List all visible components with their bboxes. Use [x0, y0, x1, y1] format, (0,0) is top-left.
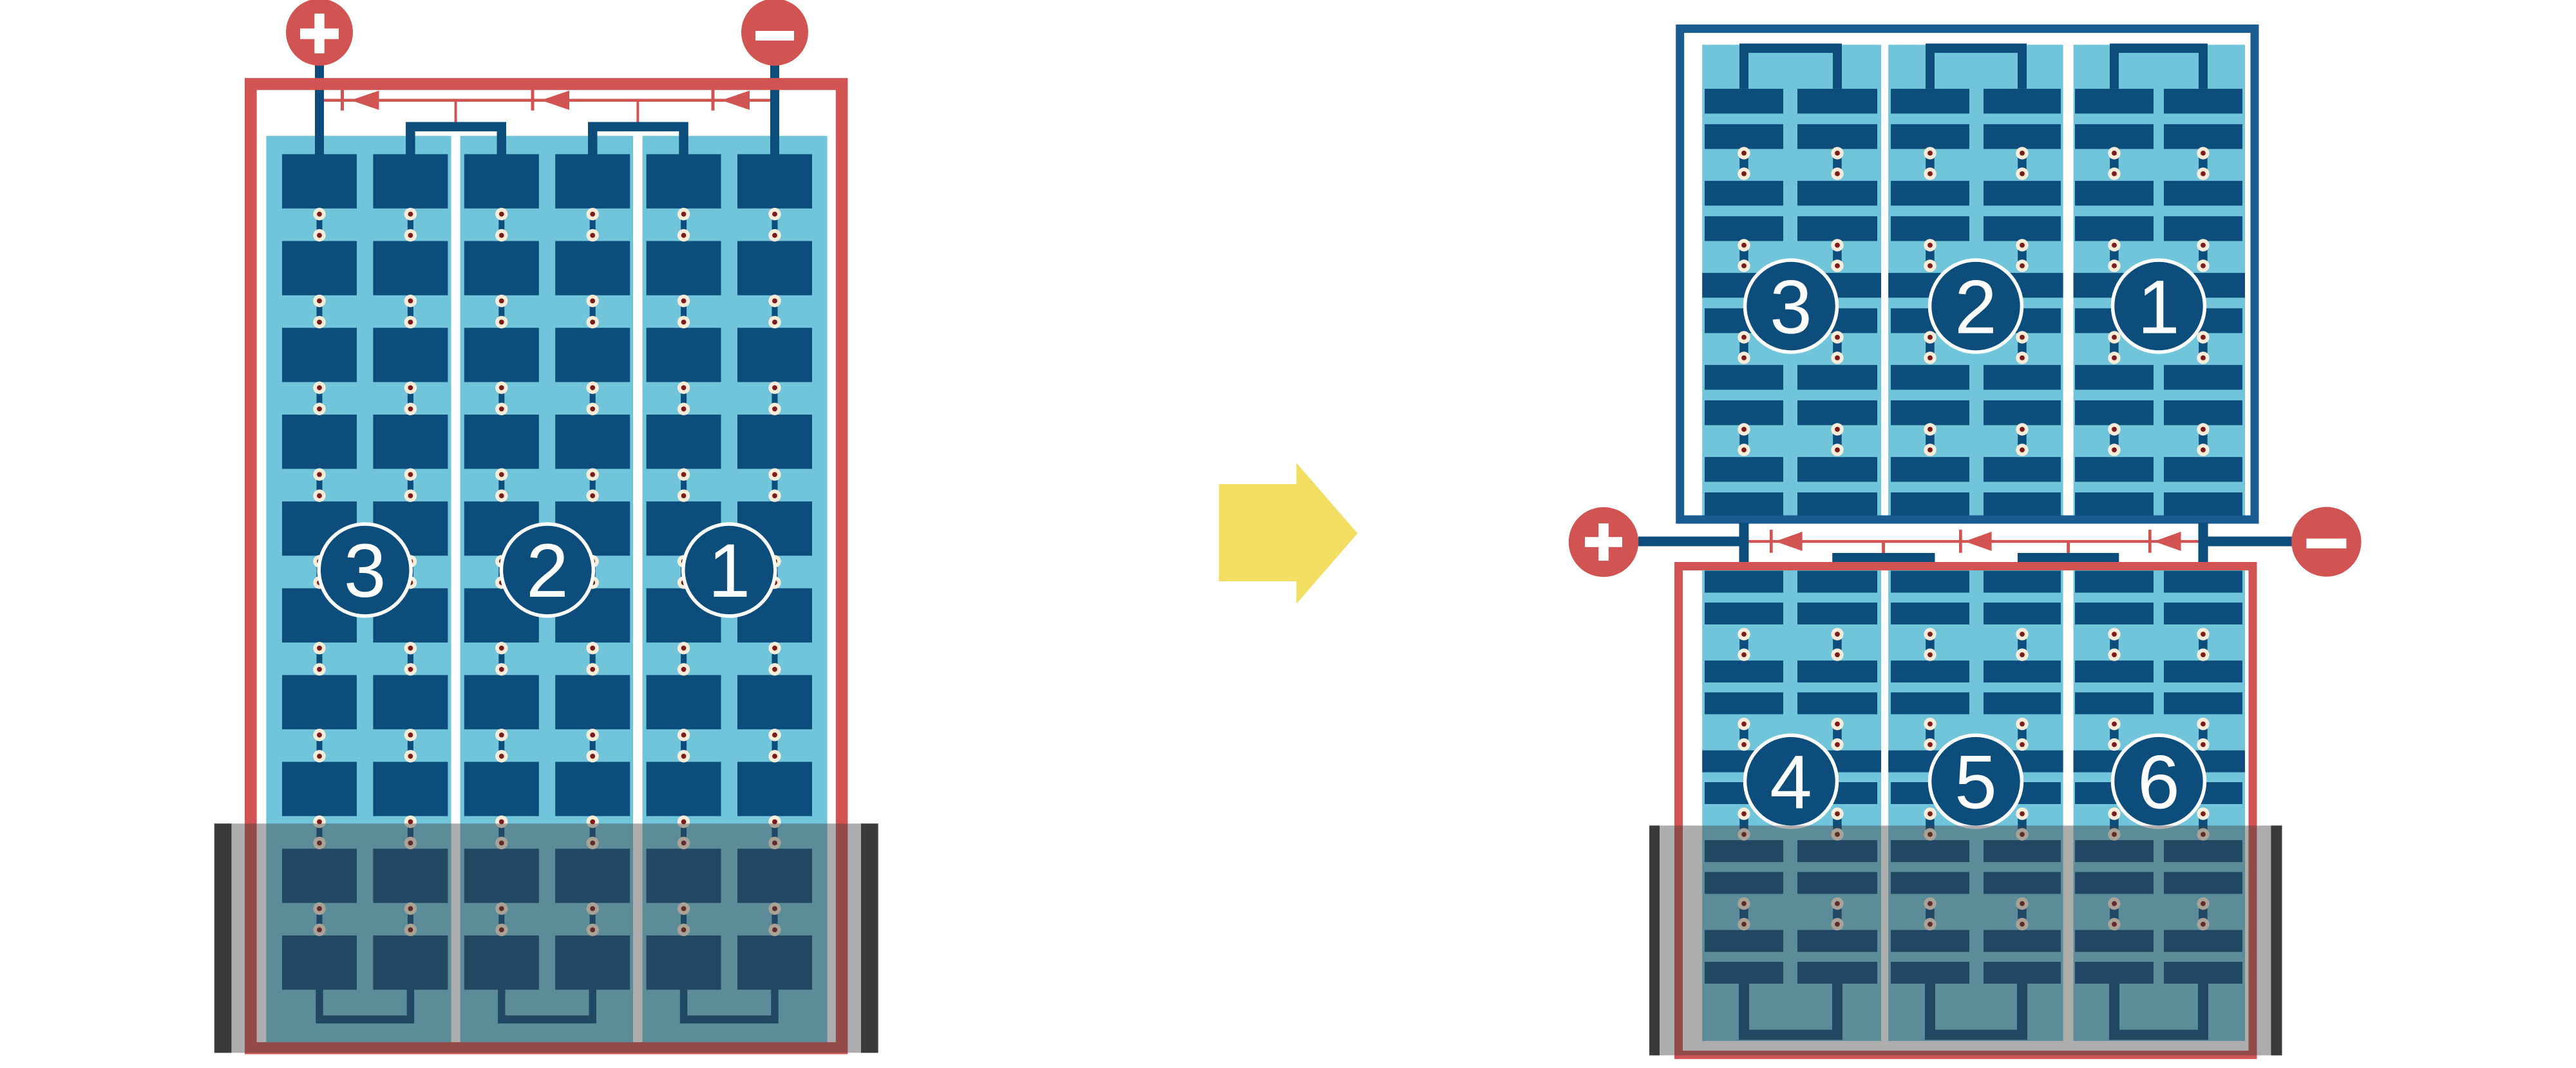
svg-text:3: 3	[1770, 265, 1812, 350]
svg-text:3: 3	[344, 529, 386, 614]
svg-text:1: 1	[708, 529, 750, 614]
svg-text:1: 1	[2137, 265, 2180, 350]
svg-text:4: 4	[1770, 740, 1812, 825]
svg-text:2: 2	[526, 529, 569, 614]
svg-text:6: 6	[2137, 740, 2180, 825]
svg-text:5: 5	[1955, 740, 1997, 825]
svg-text:2: 2	[1955, 265, 1997, 350]
